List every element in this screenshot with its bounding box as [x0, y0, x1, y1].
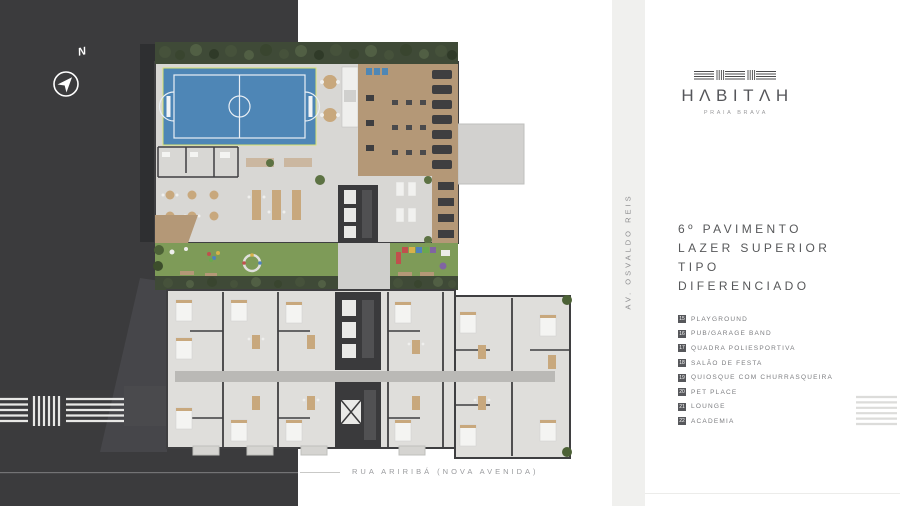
brand-tagline: PRAIA BRAVA [650, 110, 820, 116]
legend-item-label: QUADRA POLIESPORTIVA [691, 345, 796, 352]
legend-item: 16 PUB/GARAGE BAND [678, 327, 833, 342]
legend-item: 19 QUIOSQUE COM CHURRASQUEIRA [678, 370, 833, 385]
hedge-top [155, 42, 458, 64]
legend-item: 20 PET PLACE [678, 385, 833, 400]
legend-number-badge: 18 [678, 359, 686, 367]
legend-number-badge: 20 [678, 388, 686, 396]
amenities-legend: 15 PLAYGROUND 16 PUB/GARAGE BAND 17 QUAD… [678, 312, 833, 429]
compass: N [48, 46, 98, 100]
gym-deck [358, 64, 458, 176]
brand-logo: HΛBITΛH PRAIA BRAVA [650, 70, 820, 116]
legend-number-badge: 17 [678, 344, 686, 352]
legend-item: 17 QUADRA POLIESPORTIVA [678, 341, 833, 356]
sports-court [160, 68, 320, 145]
title-line: LAZER SUPERIOR [678, 239, 830, 258]
legend-item: 18 SALÃO DE FESTA [678, 356, 833, 371]
legend-item-label: PET PLACE [691, 389, 737, 396]
hedge-lower [155, 276, 458, 290]
legend-item: 21 LOUNGE [678, 400, 833, 415]
legend-number-badge: 15 [678, 315, 686, 323]
avenue-label: AV. OSVALDO REIS [624, 182, 633, 322]
elevator-core-upper [338, 185, 378, 243]
legend-item-label: SALÃO DE FESTA [691, 360, 763, 367]
legend-item-label: ACADEMIA [691, 418, 735, 425]
legend-item-label: PUB/GARAGE BAND [691, 330, 772, 337]
legend-number-badge: 19 [678, 374, 686, 382]
terrace-slab [458, 124, 524, 184]
legend-item-label: LOUNGE [691, 403, 726, 410]
amenity-floor [140, 44, 155, 242]
page: AV. OSVALDO REIS N HΛBITΛH PRAI [0, 0, 900, 506]
title-line: DIFERENCIADO [678, 277, 830, 296]
legend-item-label: PLAYGROUND [691, 316, 748, 323]
legend-number-badge: 16 [678, 330, 686, 338]
page-title: 6º PAVIMENTO LAZER SUPERIOR TIPO DIFEREN… [678, 220, 830, 296]
brand-name: HΛBITΛH [650, 86, 820, 106]
central-corridor [175, 371, 555, 382]
faint-road-line [612, 493, 900, 494]
floorplan [140, 42, 572, 458]
street-label: RUA ARIRIBÁ (NOVA AVENIDA) [352, 467, 539, 476]
street-leader-line [300, 472, 340, 473]
legend-item-label: QUIOSQUE COM CHURRASQUEIRA [691, 374, 833, 381]
elevator-core-lower [335, 292, 381, 448]
title-line: TIPO [678, 258, 830, 277]
title-line: 6º PAVIMENTO [678, 220, 830, 239]
legend-item: 15 PLAYGROUND [678, 312, 833, 327]
logo-bars-icon [694, 70, 776, 80]
legend-number-badge: 21 [678, 403, 686, 411]
legend-item: 22 ACADEMIA [678, 414, 833, 429]
crosswalk-right [856, 397, 897, 424]
legend-number-badge: 22 [678, 417, 686, 425]
